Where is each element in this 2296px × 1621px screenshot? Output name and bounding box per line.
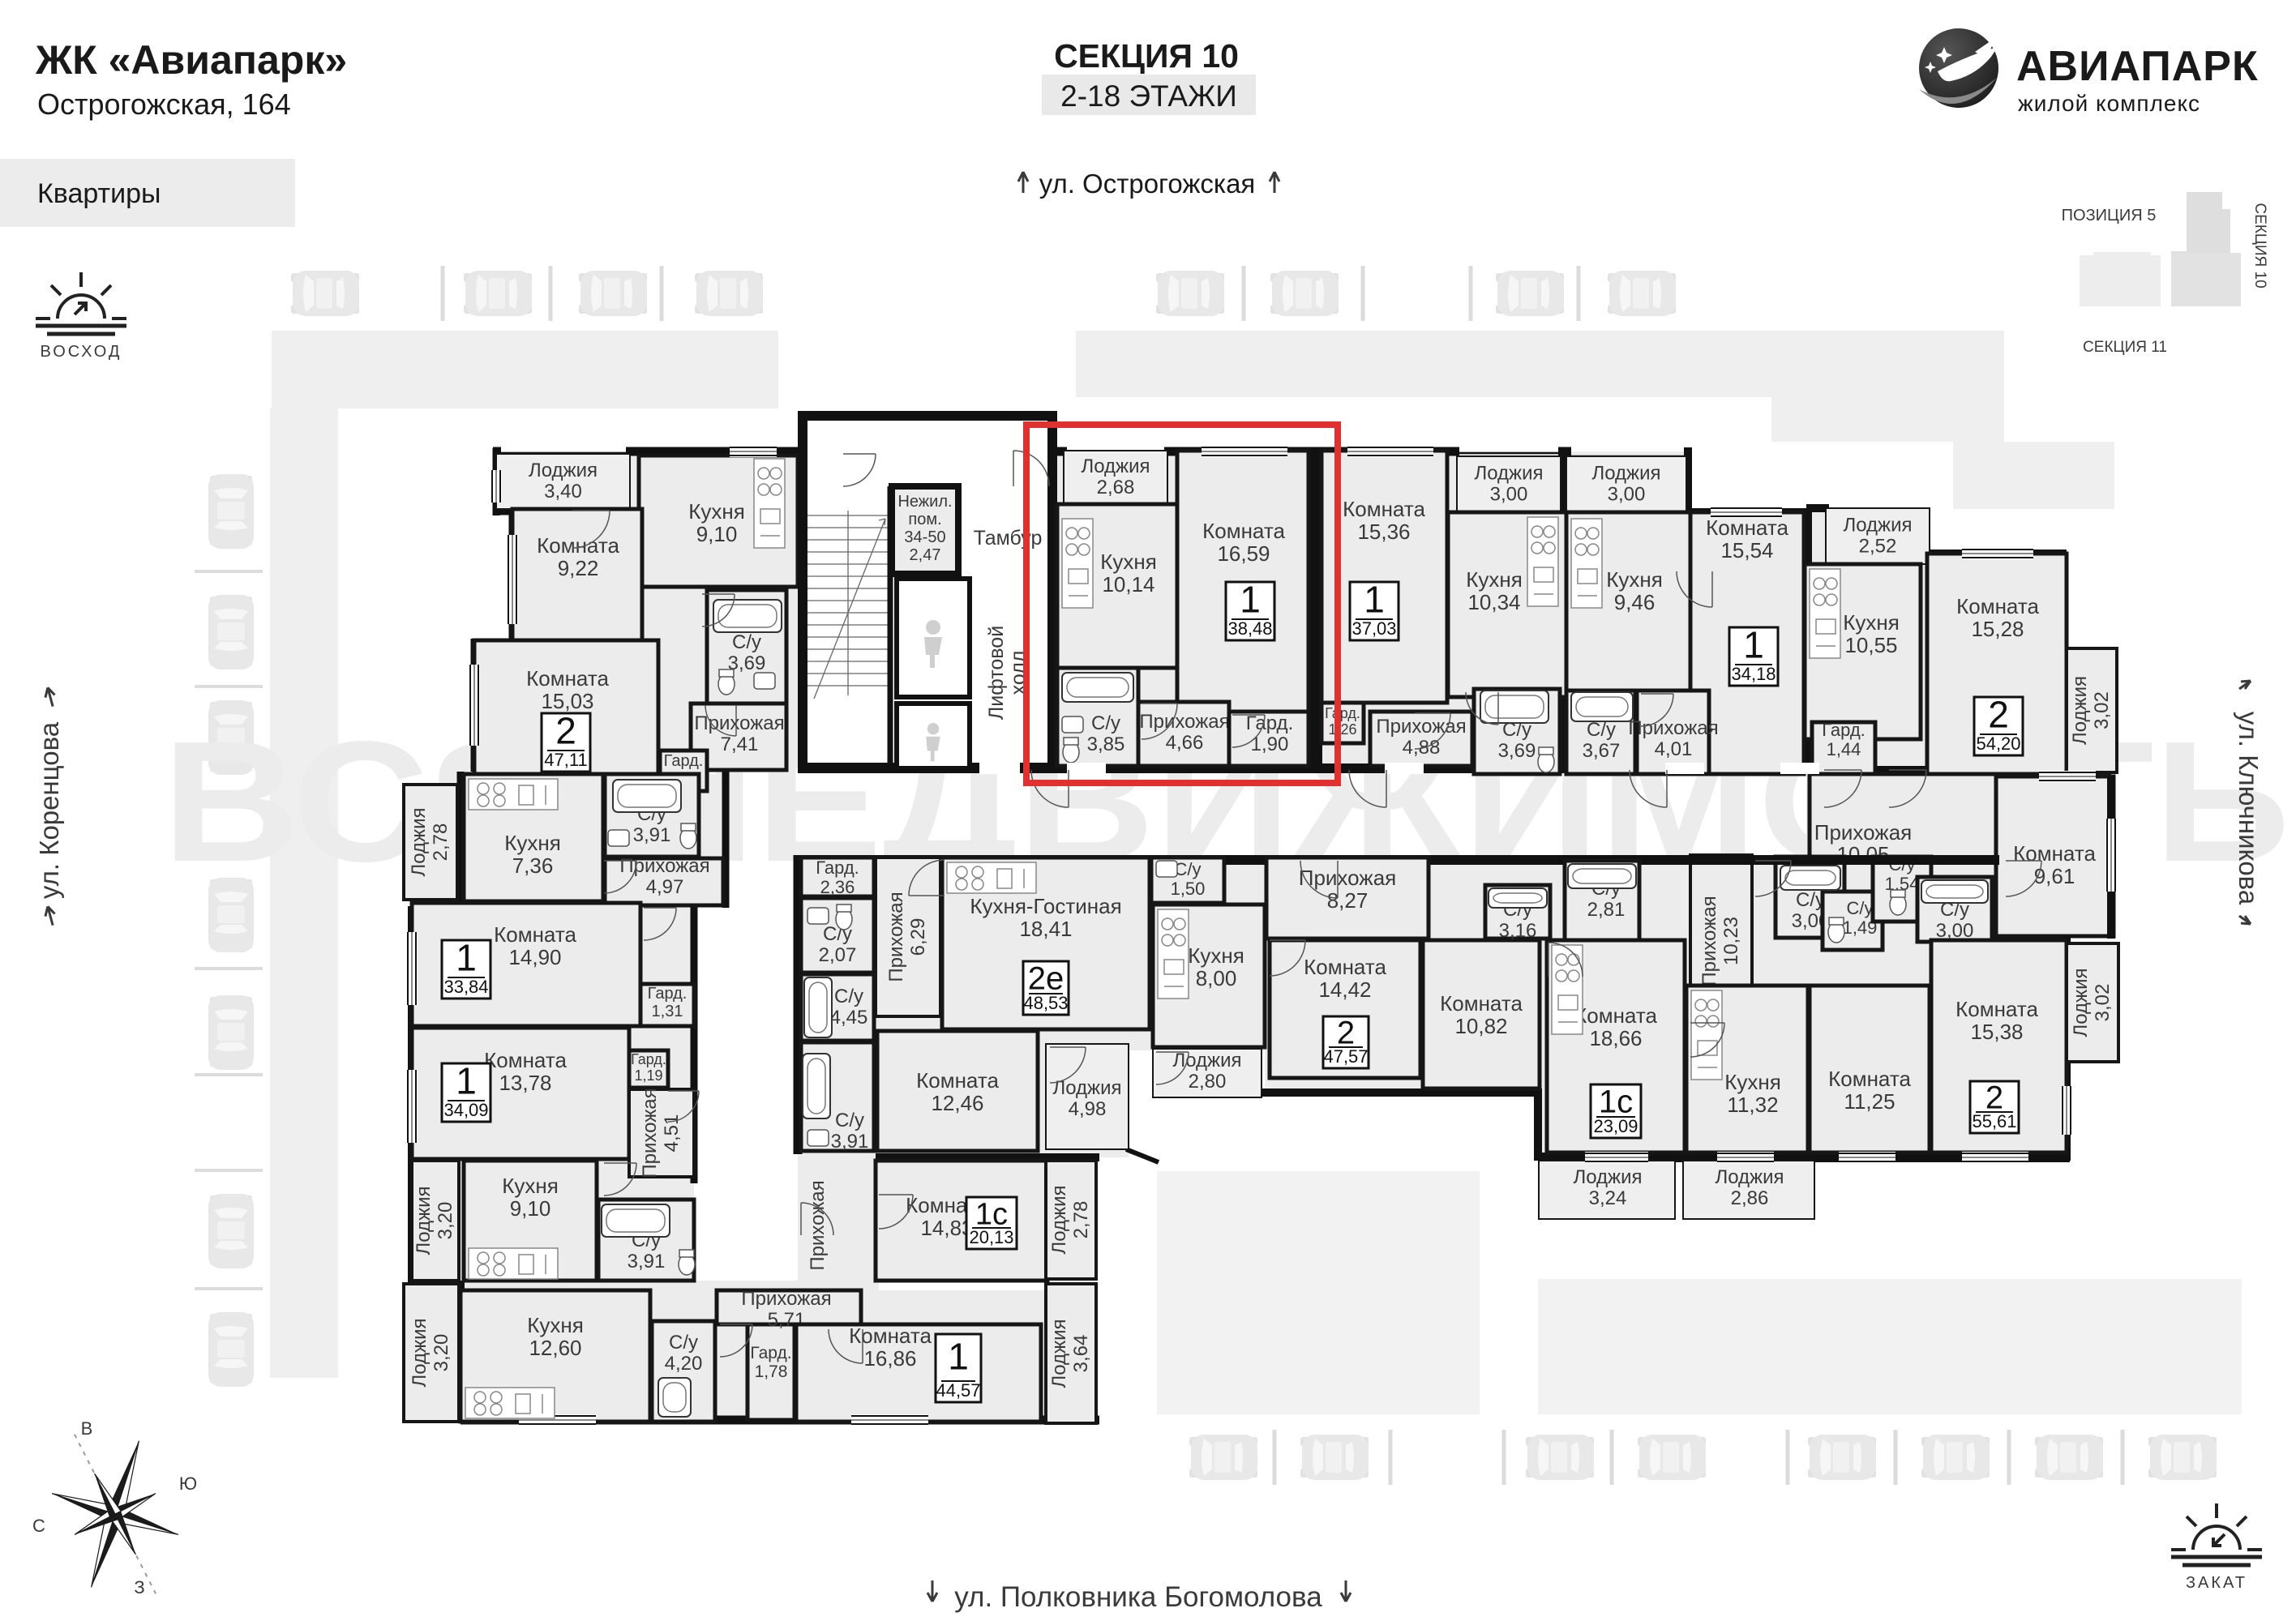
svg-text:14,42: 14,42 <box>1318 977 1371 1002</box>
svg-text:3,91: 3,91 <box>633 824 671 846</box>
svg-text:Лоджия: Лоджия <box>1591 463 1660 485</box>
svg-text:2,68: 2,68 <box>1097 477 1135 498</box>
svg-text:54,20: 54,20 <box>1976 734 2020 754</box>
svg-text:3,20: 3,20 <box>430 1334 452 1372</box>
svg-text:11,25: 11,25 <box>1844 1089 1895 1114</box>
svg-text:Кухня: Кухня <box>1466 567 1523 592</box>
svg-text:Кухня-Гостиная: Кухня-Гостиная <box>970 894 1121 918</box>
svg-text:Лоджия: Лоджия <box>1048 1319 1070 1388</box>
svg-text:2-18 ЭТАЖИ: 2-18 ЭТАЖИ <box>1060 79 1237 113</box>
svg-text:С/у: С/у <box>1587 719 1616 741</box>
svg-text:Комната: Комната <box>849 1324 932 1348</box>
svg-text:1с: 1с <box>975 1197 1008 1231</box>
svg-text:Комната: Комната <box>494 922 576 947</box>
svg-text:ул. Острогожская: ул. Острогожская <box>1039 169 1256 199</box>
svg-text:Гард.: Гард. <box>631 1051 666 1067</box>
svg-text:Лоджия: Лоджия <box>2069 676 2091 745</box>
svg-text:Прихожая: Прихожая <box>1814 820 1912 845</box>
svg-text:1с: 1с <box>1599 1084 1633 1119</box>
svg-text:С/у: С/у <box>732 631 761 653</box>
svg-text:Гард.: Гард. <box>648 985 688 1003</box>
svg-text:1,26: 1,26 <box>1328 721 1356 738</box>
svg-text:пом.: пом. <box>908 511 941 528</box>
svg-text:9,10: 9,10 <box>510 1196 551 1221</box>
svg-text:55,61: 55,61 <box>1972 1111 2016 1131</box>
svg-text:Прихожая: Прихожая <box>1139 711 1229 733</box>
svg-text:2,07: 2,07 <box>819 944 857 966</box>
svg-text:4,88: 4,88 <box>1403 737 1441 759</box>
svg-text:12,60: 12,60 <box>529 1336 581 1360</box>
svg-text:10,82: 10,82 <box>1454 1014 1507 1038</box>
svg-text:ЗАКАТ: ЗАКАТ <box>2186 1574 2247 1592</box>
svg-text:Лоджия: Лоджия <box>1081 456 1150 477</box>
svg-text:Гард.: Гард. <box>816 858 859 878</box>
svg-text:1,19: 1,19 <box>634 1067 662 1084</box>
svg-text:Кухня: Кухня <box>504 831 561 855</box>
svg-text:Комната: Комната <box>1202 519 1285 543</box>
svg-text:1,31: 1,31 <box>652 1003 683 1020</box>
svg-text:С/у: С/у <box>834 986 863 1007</box>
svg-text:1,50: 1,50 <box>1171 879 1206 899</box>
svg-text:Комната: Комната <box>1574 1003 1657 1028</box>
svg-text:С: С <box>32 1516 45 1536</box>
svg-text:3,67: 3,67 <box>1583 740 1621 762</box>
svg-text:Комната: Комната <box>1343 497 1425 521</box>
svg-text:С/у: С/у <box>669 1332 698 1354</box>
svg-text:Лоджия: Лоджия <box>529 460 598 481</box>
svg-text:15,28: 15,28 <box>1971 617 2024 641</box>
svg-text:ЖК «Авиапарк»: ЖК «Авиапарк» <box>35 37 347 83</box>
svg-text:4,97: 4,97 <box>646 876 684 898</box>
svg-text:Тамбур: Тамбур <box>974 527 1043 550</box>
svg-text:6,29: 6,29 <box>907 918 929 956</box>
svg-text:3,20: 3,20 <box>435 1202 456 1240</box>
svg-text:Комната: Комната <box>1955 997 2038 1021</box>
svg-text:11,32: 11,32 <box>1727 1093 1778 1117</box>
svg-text:Лоджия: Лоджия <box>409 1318 430 1387</box>
svg-text:9,10: 9,10 <box>696 522 738 546</box>
svg-text:14,90: 14,90 <box>508 945 561 969</box>
svg-text:2,78: 2,78 <box>430 823 452 862</box>
svg-text:СЕКЦИЯ 10: СЕКЦИЯ 10 <box>1054 37 1239 75</box>
svg-text:Комната: Комната <box>1706 515 1788 540</box>
svg-text:16,59: 16,59 <box>1217 541 1270 566</box>
svg-text:Лоджия: Лоджия <box>2070 968 2092 1037</box>
svg-text:7,36: 7,36 <box>512 853 554 878</box>
svg-text:Комната: Комната <box>537 533 619 558</box>
svg-text:2,78: 2,78 <box>1070 1201 1092 1239</box>
svg-text:3,00: 3,00 <box>1490 484 1528 506</box>
svg-text:44,57: 44,57 <box>936 1380 980 1401</box>
svg-text:Гард.: Гард. <box>750 1344 791 1362</box>
svg-text:10,55: 10,55 <box>1844 633 1897 657</box>
svg-text:Лоджия: Лоджия <box>1843 515 1912 537</box>
svg-text:2: 2 <box>1985 1080 2003 1115</box>
svg-text:Кухня: Кухня <box>1606 567 1663 592</box>
svg-text:С/у: С/у <box>835 1110 864 1131</box>
svg-text:1,78: 1,78 <box>755 1362 788 1381</box>
svg-text:2,47: 2,47 <box>910 546 941 564</box>
svg-text:Лоджия: Лоджия <box>1715 1166 1784 1188</box>
svg-text:7,41: 7,41 <box>721 734 759 755</box>
svg-text:15,54: 15,54 <box>1720 538 1773 562</box>
svg-text:Гард.: Гард. <box>664 752 704 770</box>
svg-text:2: 2 <box>1337 1015 1355 1050</box>
svg-text:48,53: 48,53 <box>1023 993 1068 1013</box>
svg-text:3,40: 3,40 <box>544 481 582 503</box>
svg-text:Кухня: Кухня <box>1724 1070 1781 1094</box>
svg-text:Прихожая: Прихожая <box>1376 716 1466 738</box>
svg-text:4,20: 4,20 <box>665 1353 703 1375</box>
svg-text:Квартиры: Квартиры <box>37 178 161 209</box>
svg-text:Гард.: Гард. <box>1246 712 1293 734</box>
svg-text:Кухня: Кухня <box>1188 943 1244 968</box>
svg-text:16,86: 16,86 <box>863 1346 916 1371</box>
svg-text:47,11: 47,11 <box>544 750 587 770</box>
svg-text:3,85: 3,85 <box>1087 734 1125 755</box>
svg-text:18,41: 18,41 <box>1019 917 1072 941</box>
svg-text:9,46: 9,46 <box>1614 590 1656 614</box>
svg-text:34-50: 34-50 <box>904 528 945 546</box>
svg-text:АВИАПАРК: АВИАПАРК <box>2016 43 2259 90</box>
svg-text:4,01: 4,01 <box>1655 738 1693 760</box>
svg-text:С/у: С/у <box>1175 859 1202 879</box>
svg-text:ул. Полковника Богомолова: ул. Полковника Богомолова <box>954 1581 1322 1613</box>
svg-text:Лифтовой: Лифтовой <box>985 626 1008 720</box>
svg-text:Комната: Комната <box>1956 594 2039 618</box>
svg-text:Лоджия: Лоджия <box>1474 463 1543 485</box>
svg-text:13,78: 13,78 <box>499 1071 551 1095</box>
svg-text:Лоджия: Лоджия <box>1048 1185 1070 1254</box>
svg-text:В: В <box>81 1418 93 1439</box>
svg-text:Лоджия: Лоджия <box>413 1186 435 1255</box>
svg-text:Прихожая: Прихожая <box>1698 896 1720 986</box>
svg-text:1: 1 <box>456 936 477 978</box>
svg-text:Кухня: Кухня <box>1843 610 1900 635</box>
svg-text:2е: 2е <box>1028 960 1064 996</box>
svg-text:3,91: 3,91 <box>628 1251 666 1272</box>
svg-text:Комната: Комната <box>1440 991 1523 1016</box>
svg-text:15,38: 15,38 <box>1970 1020 2023 1044</box>
svg-text:Комната: Комната <box>1828 1067 1911 1091</box>
svg-text:33,84: 33,84 <box>443 977 488 997</box>
svg-text:Комната: Комната <box>526 666 609 691</box>
svg-text:3,02: 3,02 <box>2091 691 2113 729</box>
svg-text:Нежил.: Нежил. <box>897 493 952 511</box>
svg-text:1: 1 <box>456 1059 477 1101</box>
svg-text:СЕКЦИЯ 10: СЕКЦИЯ 10 <box>2251 203 2268 288</box>
svg-text:З: З <box>134 1577 144 1597</box>
svg-text:34,09: 34,09 <box>443 1100 488 1120</box>
svg-text:2,81: 2,81 <box>1587 899 1626 921</box>
svg-text:Комната: Комната <box>1304 955 1386 979</box>
svg-text:Прихожая: Прихожая <box>694 712 784 734</box>
svg-text:4,98: 4,98 <box>1069 1098 1107 1120</box>
svg-text:Кухня: Кухня <box>688 499 745 524</box>
svg-text:Кухня: Кухня <box>502 1174 559 1198</box>
svg-text:Прихожая: Прихожая <box>639 1088 661 1178</box>
svg-text:2,36: 2,36 <box>820 877 855 897</box>
svg-text:1: 1 <box>1364 578 1385 620</box>
svg-text:Комната: Комната <box>2013 841 2096 866</box>
svg-text:Гард.: Гард. <box>1325 705 1360 721</box>
svg-text:Кухня: Кухня <box>1100 550 1157 574</box>
svg-text:Комната: Комната <box>484 1048 567 1072</box>
svg-text:10,34: 10,34 <box>1467 590 1520 614</box>
svg-text:3,24: 3,24 <box>1589 1187 1627 1209</box>
svg-text:Прихожая: Прихожая <box>885 892 907 982</box>
svg-text:СЕКЦИЯ 11: СЕКЦИЯ 11 <box>2083 339 2167 356</box>
svg-text:18,66: 18,66 <box>1589 1026 1642 1050</box>
svg-text:9,61: 9,61 <box>2034 864 2075 888</box>
svg-text:Прихожая: Прихожая <box>1628 717 1718 739</box>
svg-text:Лоджия: Лоджия <box>1573 1166 1642 1188</box>
svg-text:2: 2 <box>1988 693 2009 735</box>
svg-text:2,86: 2,86 <box>1731 1187 1769 1209</box>
svg-text:8,00: 8,00 <box>1196 966 1237 990</box>
svg-text:1,44: 1,44 <box>1827 739 1861 759</box>
svg-text:1: 1 <box>948 1336 969 1378</box>
svg-text:20,13: 20,13 <box>969 1227 1013 1247</box>
svg-text:Кухня: Кухня <box>527 1313 584 1337</box>
svg-text:Прихожая: Прихожая <box>807 1180 829 1270</box>
svg-text:1: 1 <box>1743 623 1764 665</box>
svg-text:8,27: 8,27 <box>1327 888 1369 913</box>
svg-text:Прихожая: Прихожая <box>741 1288 831 1310</box>
svg-text:10,14: 10,14 <box>1102 572 1154 597</box>
svg-text:Ю: Ю <box>179 1473 197 1494</box>
svg-text:3,16: 3,16 <box>1499 920 1537 942</box>
svg-text:2: 2 <box>555 709 576 751</box>
svg-text:3,69: 3,69 <box>1498 740 1536 762</box>
svg-text:1: 1 <box>1240 578 1261 620</box>
svg-text:37,03: 37,03 <box>1351 618 1396 639</box>
svg-text:ул. Ключникова: ул. Ключникова <box>2234 712 2264 905</box>
svg-text:38,48: 38,48 <box>1227 618 1272 639</box>
svg-text:10,23: 10,23 <box>1720 917 1742 965</box>
svg-text:4,45: 4,45 <box>830 1007 868 1029</box>
svg-text:Прихожая: Прихожая <box>1299 866 1396 890</box>
svg-text:2,80: 2,80 <box>1189 1071 1227 1093</box>
svg-text:С/у: С/у <box>1847 898 1874 918</box>
svg-text:Лоджия: Лоджия <box>1172 1050 1241 1071</box>
svg-text:4,66: 4,66 <box>1166 732 1204 754</box>
svg-text:С/у: С/у <box>1091 712 1120 734</box>
svg-text:23,09: 23,09 <box>1593 1116 1638 1136</box>
svg-text:15,36: 15,36 <box>1357 520 1410 544</box>
svg-text:47,57: 47,57 <box>1323 1046 1368 1067</box>
svg-text:Острогожская, 164: Острогожская, 164 <box>37 88 291 121</box>
svg-text:3,02: 3,02 <box>2092 984 2114 1022</box>
svg-text:9,22: 9,22 <box>558 556 599 580</box>
svg-text:12,46: 12,46 <box>931 1091 983 1115</box>
svg-text:Лоджия: Лоджия <box>408 807 430 876</box>
svg-text:3,91: 3,91 <box>831 1131 869 1153</box>
svg-text:жилой комплекс: жилой комплекс <box>2018 91 2200 116</box>
svg-text:Комната: Комната <box>916 1068 999 1093</box>
svg-text:ВОСХОД: ВОСХОД <box>41 343 122 361</box>
svg-text:2,52: 2,52 <box>1859 536 1897 558</box>
svg-text:34,18: 34,18 <box>1731 664 1776 684</box>
svg-text:Гард.: Гард. <box>1822 720 1865 740</box>
svg-text:ПОЗИЦИЯ 5: ПОЗИЦИЯ 5 <box>2062 207 2157 225</box>
svg-text:3,00: 3,00 <box>1608 484 1646 506</box>
svg-text:ул. Коренцова: ул. Коренцова <box>34 721 64 899</box>
svg-text:3,64: 3,64 <box>1070 1335 1092 1373</box>
